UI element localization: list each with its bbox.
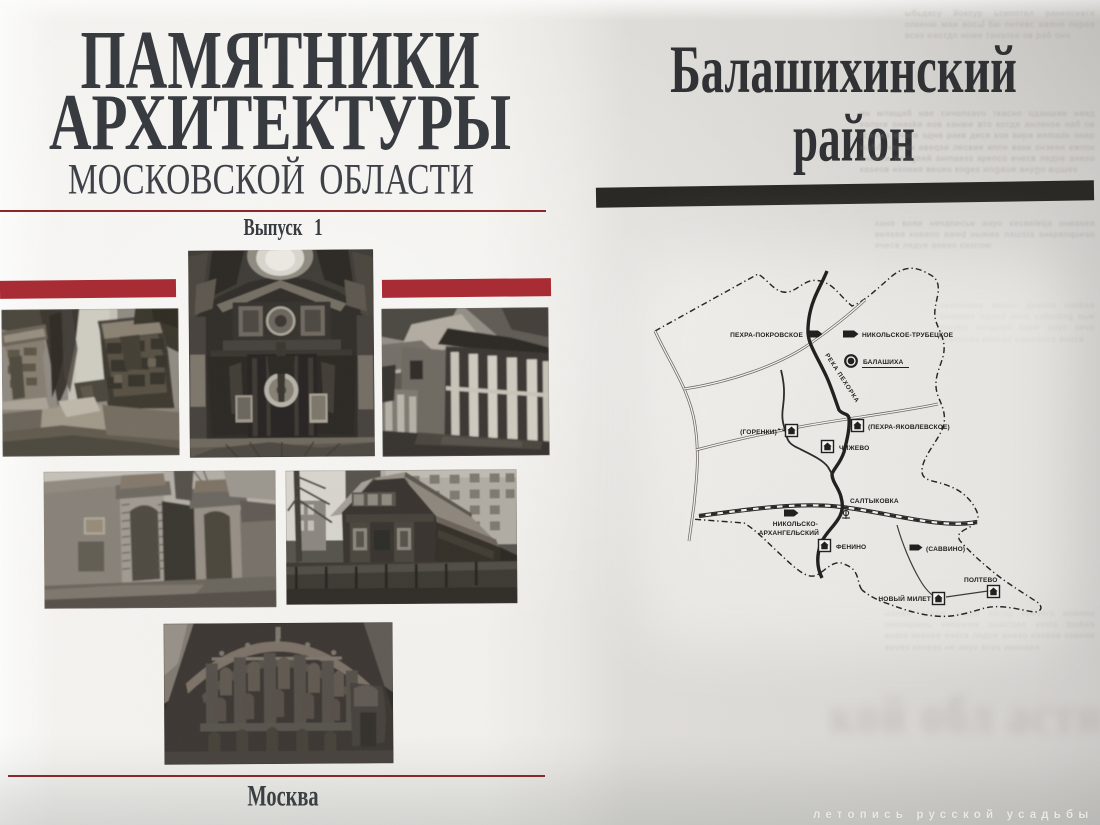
svg-text:ФЕНИНО: ФЕНИНО [836,544,866,551]
svg-text:(ГОРЕНКИ): (ГОРЕНКИ) [740,429,777,436]
svg-text:НИКОЛЬСКОЕ-ТРУБЕЦКОЕ: НИКОЛЬСКОЕ-ТРУБЕЦКОЕ [862,332,954,339]
svg-text:ПЕХРА-ПОКРОВСКОЕ: ПЕХРА-ПОКРОВСКОЕ [730,332,803,339]
svg-text:НИКОЛЬСКО-: НИКОЛЬСКО- [773,521,818,528]
svg-text:(ПЕХРА-ЯКОВЛЕВСКОЕ): (ПЕХРА-ЯКОВЛЕВСКОЕ) [868,424,950,431]
svg-text:НОВЫЙ МИЛЕТ: НОВЫЙ МИЛЕТ [878,594,931,603]
svg-text:БАЛАШИХА: БАЛАШИХА [863,359,904,366]
svg-text:САЛТЫКОВКА: САЛТЫКОВКА [850,498,899,505]
svg-text:ЧИЖЕВО: ЧИЖЕВО [839,445,869,452]
svg-text:АРХАНГЕЛЬСКИЙ: АРХАНГЕЛЬСКИЙ [759,528,819,537]
svg-text:(САВВИНО): (САВВИНО) [926,546,965,553]
svg-text:ПОЛТЕВО: ПОЛТЕВО [964,577,998,584]
